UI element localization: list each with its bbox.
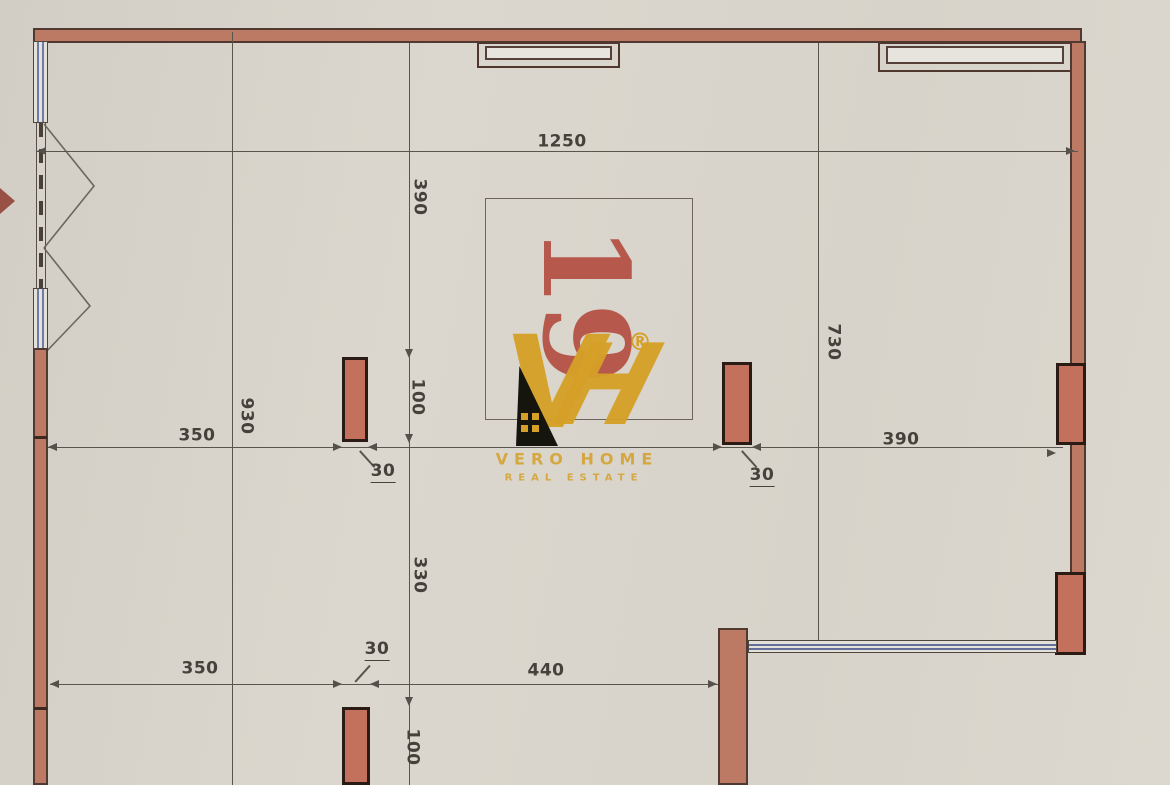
arrow-icon <box>370 680 379 688</box>
wall-joint <box>34 707 47 710</box>
arrow-icon <box>405 434 413 443</box>
pillar-right-mid <box>722 362 752 445</box>
arrow-icon <box>708 680 717 688</box>
dim-line-bottom <box>50 684 718 685</box>
arrow-icon <box>1047 449 1056 457</box>
watermark-tagline: REAL ESTATE <box>505 473 644 484</box>
pilaster-right-bottom <box>1055 572 1086 655</box>
watermark-brand-name: VERO HOME <box>496 450 659 469</box>
window-left-mid <box>33 288 48 350</box>
casement-swing-icon <box>42 120 104 358</box>
arrow-icon <box>48 443 57 451</box>
wall-joint <box>34 436 47 439</box>
window-bottom <box>748 640 1057 653</box>
dim-top-width: 1250 <box>537 134 586 151</box>
dim-pillar-height-bottom: 100 <box>404 729 421 766</box>
dim-line-v-730 <box>818 43 819 640</box>
dim-bottom-left-width: 350 <box>182 661 219 678</box>
building-window-icon <box>521 413 528 420</box>
shaft-inner <box>485 46 612 60</box>
arrow-icon <box>405 349 413 358</box>
dim-mid-right-width: 390 <box>883 432 920 449</box>
entry-arrow-icon <box>0 188 15 214</box>
dim-left-column-height: 930 <box>238 398 255 435</box>
pilaster-right-mid <box>1056 363 1086 445</box>
pillar-bottom <box>342 707 370 785</box>
arrow-icon <box>37 147 46 155</box>
arrow-icon <box>50 680 59 688</box>
building-window-icon <box>521 425 528 432</box>
wall-left-lower <box>33 348 48 785</box>
building-window-icon <box>532 413 539 420</box>
floor-plan: 1250 390 930 100 330 100 730 350 390 30 … <box>0 0 1170 785</box>
arrow-icon <box>405 697 413 706</box>
dim-pillar-width-right: 30 <box>750 467 775 487</box>
pillar-left-mid <box>342 357 368 442</box>
arrow-icon <box>713 443 722 451</box>
wall-right <box>1070 41 1086 655</box>
arrow-icon <box>333 443 342 451</box>
window-left-top <box>33 41 48 123</box>
dim-right-height: 730 <box>825 324 842 361</box>
dim-mid-left-width: 350 <box>179 428 216 445</box>
leader-line <box>354 665 370 682</box>
dim-pillar-width-left: 30 <box>371 463 396 483</box>
wall-top <box>33 28 1082 43</box>
dim-bottom-mid-width: 440 <box>528 663 565 680</box>
shaft-inner <box>886 46 1064 64</box>
dim-bottom-pillar-width: 30 <box>365 641 390 661</box>
arrow-icon <box>1066 147 1075 155</box>
registered-trademark-icon: ® <box>628 328 652 356</box>
arrow-icon <box>333 680 342 688</box>
dim-line-v-930 <box>232 32 233 785</box>
shaft-top-left <box>477 42 620 68</box>
arrow-icon <box>368 443 377 451</box>
dim-upper-height: 390 <box>411 179 428 216</box>
building-window-icon <box>532 425 539 432</box>
wall-bottom-middle <box>718 628 748 785</box>
dim-middle-height: 330 <box>411 557 428 594</box>
arrow-icon <box>752 443 761 451</box>
shaft-top-right <box>878 42 1072 72</box>
dim-pillar-height-mid: 100 <box>409 379 426 416</box>
